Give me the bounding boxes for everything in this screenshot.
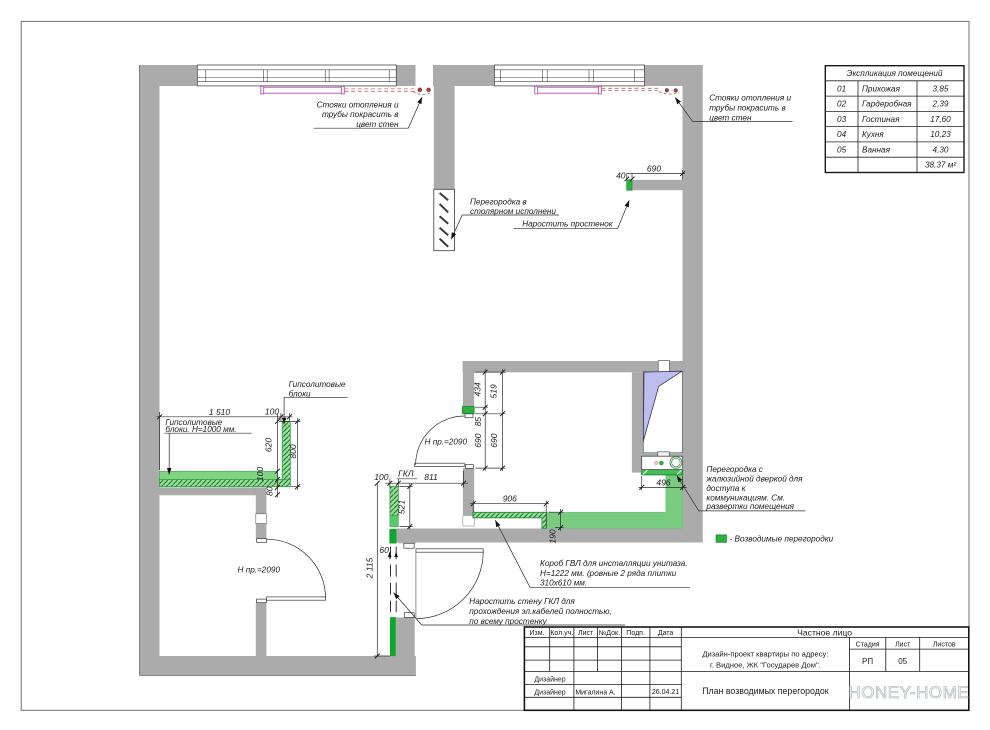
svg-text:2,39: 2,39 — [932, 100, 949, 109]
svg-text:Гостиная: Гостиная — [862, 115, 900, 124]
svg-text:521: 521 — [396, 500, 406, 514]
svg-text:цвет стен: цвет стен — [709, 113, 752, 122]
svg-text:100: 100 — [255, 467, 265, 481]
svg-text:Перегородка с: Перегородка с — [706, 465, 763, 474]
svg-text:800: 800 — [288, 444, 298, 458]
svg-text:РП: РП — [862, 657, 873, 666]
svg-text:Гипсолитовые: Гипсолитовые — [289, 380, 346, 389]
svg-text:Н пр.=2090: Н пр.=2090 — [238, 565, 281, 574]
svg-text:85: 85 — [473, 417, 483, 427]
svg-text:496: 496 — [656, 478, 670, 488]
svg-text:- Возводимые перегородки: - Возводимые перегородки — [730, 535, 834, 544]
svg-text:столярном исполнени: столярном исполнени — [470, 207, 556, 216]
svg-text:Кухня: Кухня — [862, 130, 884, 139]
svg-text:620: 620 — [264, 438, 274, 452]
svg-text:Подп.: Подп. — [626, 630, 645, 637]
svg-text:Гардеробная: Гардеробная — [862, 100, 912, 109]
svg-text:04: 04 — [837, 130, 847, 139]
svg-text:690: 690 — [473, 433, 483, 447]
svg-text:Частное лицо: Частное лицо — [797, 627, 852, 637]
svg-text:Мигалина А.: Мигалина А. — [575, 690, 615, 697]
svg-text:Стадия: Стадия — [856, 642, 880, 649]
svg-text:10,23: 10,23 — [930, 130, 951, 139]
svg-text:1 510: 1 510 — [209, 407, 231, 417]
svg-text:Экспликация помещений: Экспликация помещений — [847, 69, 943, 78]
svg-text:01: 01 — [837, 84, 846, 93]
svg-text:Лист: Лист — [895, 642, 911, 649]
svg-text:310х610 мм.: 310х610 мм. — [540, 579, 587, 588]
svg-text:190: 190 — [547, 529, 557, 543]
svg-text:Дизайнер: Дизайнер — [534, 676, 565, 684]
svg-text:прохождения эл.кабелей полност: прохождения эл.кабелей полностью, — [469, 607, 611, 616]
svg-text:811: 811 — [424, 472, 438, 482]
svg-text:100: 100 — [374, 472, 388, 482]
svg-text:по всему простенку: по всему простенку — [469, 617, 547, 626]
svg-text:Дизайн-проект квартиры по адре: Дизайн-проект квартиры по адресу: — [702, 650, 828, 659]
svg-text:03: 03 — [837, 115, 847, 124]
svg-text:Дизайнер: Дизайнер — [534, 689, 565, 697]
svg-text:ГКЛ: ГКЛ — [398, 468, 414, 478]
svg-text:434: 434 — [473, 382, 483, 396]
svg-text:80: 80 — [265, 486, 275, 496]
svg-text:40: 40 — [616, 171, 626, 181]
svg-text:38,37 м²: 38,37 м² — [925, 161, 956, 170]
svg-text:HONEY-HOME: HONEY-HOME — [849, 683, 970, 702]
svg-text:Ванная: Ванная — [862, 145, 891, 154]
svg-text:Перегородка в: Перегородка в — [470, 197, 527, 206]
svg-text:жалюзийной дверкой для: жалюзийной дверкой для — [705, 475, 803, 484]
svg-text:690: 690 — [647, 164, 661, 174]
svg-text:Прихожая: Прихожая — [862, 84, 901, 93]
svg-text:развертки помещения: развертки помещения — [705, 502, 794, 511]
svg-text:17,60: 17,60 — [930, 115, 951, 124]
svg-text:05: 05 — [837, 145, 847, 154]
svg-text:Листов: Листов — [933, 642, 956, 649]
svg-text:4,30: 4,30 — [933, 145, 949, 154]
svg-text:Н=1222 мм. (ровные 2 ряда плит: Н=1222 мм. (ровные 2 ряда плитки — [540, 569, 677, 578]
svg-text:Наростить простенок: Наростить простенок — [522, 220, 614, 229]
svg-text:02: 02 — [837, 100, 847, 109]
svg-text:Стояки отопления и: Стояки отопления и — [317, 100, 399, 109]
svg-text:Дата: Дата — [658, 630, 674, 637]
svg-text:05: 05 — [898, 657, 907, 666]
svg-text:Лист: Лист — [578, 630, 594, 637]
svg-text:трубы покрасить в: трубы покрасить в — [322, 110, 399, 119]
svg-text:Стояки отопления и: Стояки отопления и — [709, 94, 791, 103]
svg-text:690: 690 — [489, 433, 499, 447]
svg-text:доступа к: доступа к — [706, 484, 746, 493]
svg-text:Кол.уч.: Кол.уч. — [550, 630, 573, 637]
svg-text:519: 519 — [488, 384, 498, 398]
svg-text:26.04.21: 26.04.21 — [652, 689, 679, 696]
svg-text:906: 906 — [503, 493, 517, 503]
svg-text:Изм.: Изм. — [530, 630, 545, 637]
svg-text:Наростить стену ГКЛ для: Наростить стену ГКЛ для — [469, 597, 575, 606]
svg-text:цвет стен: цвет стен — [356, 120, 399, 129]
svg-text:блоки. Н=1000 мм.: блоки. Н=1000 мм. — [165, 425, 236, 434]
svg-text:План возводимых перегородок: План возводимых перегородок — [702, 686, 829, 696]
svg-text:блоки: блоки — [289, 389, 311, 398]
svg-text:2 115: 2 115 — [365, 557, 375, 579]
svg-text:трубы покрасить в: трубы покрасить в — [709, 104, 786, 113]
svg-text:Короб ГВЛ для инсталляции унит: Короб ГВЛ для инсталляции унитаза. — [540, 559, 688, 568]
svg-text:3,85: 3,85 — [933, 84, 949, 93]
svg-text:60: 60 — [379, 545, 389, 555]
svg-text:№Док.: №Док. — [599, 630, 620, 637]
svg-text:Н пр.=2090: Н пр.=2090 — [425, 438, 468, 447]
svg-text:г. Видное, ЖК "Государев Дом".: г. Видное, ЖК "Государев Дом". — [710, 660, 821, 669]
